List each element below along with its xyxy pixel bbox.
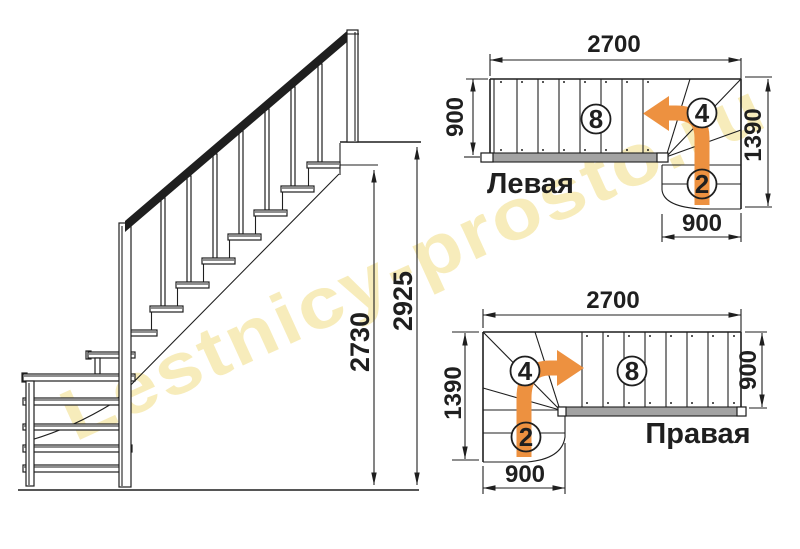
staircase-drawing-page: Lestnicy-prosto.ru <box>0 0 800 549</box>
dim-right-label: 1390 <box>740 108 767 161</box>
plan-left-title: Левая <box>487 168 574 200</box>
direction-arrowhead <box>557 350 584 386</box>
bottom-steps-count: 2 <box>519 422 533 452</box>
dim-2730-label: 2730 <box>345 312 375 372</box>
plan-right-title: Правая <box>645 418 750 450</box>
guard-post <box>26 381 34 486</box>
straight-treads <box>582 332 728 407</box>
dim-left-label: 900 <box>442 97 469 137</box>
top-newel-post <box>347 30 358 142</box>
bottom-steps-count: 2 <box>695 169 709 199</box>
staircase-technical-drawing: Lestnicy-prosto.ru <box>0 0 800 549</box>
dim-top-label: 2700 <box>586 287 639 314</box>
stringer-strip <box>481 153 668 162</box>
dim-left-label: 1390 <box>440 366 467 419</box>
dim-top-label: 2700 <box>587 31 640 58</box>
winder-steps-count: 4 <box>695 98 710 128</box>
winder-steps-count: 4 <box>518 356 533 386</box>
dim-right-label: 900 <box>735 350 762 390</box>
bottom-newel-post <box>119 223 131 487</box>
stringer-strip <box>558 407 746 416</box>
dim-bottom-label: 900 <box>682 210 722 237</box>
plan-right-version: 2 4 8 2700 1390 900 900 Правая <box>440 287 767 494</box>
dim-bottom-label: 900 <box>505 461 545 488</box>
dim-2925-label: 2925 <box>388 271 418 331</box>
handrail <box>125 31 347 232</box>
straight-steps-count: 8 <box>625 356 639 386</box>
straight-steps-count: 8 <box>589 104 603 134</box>
